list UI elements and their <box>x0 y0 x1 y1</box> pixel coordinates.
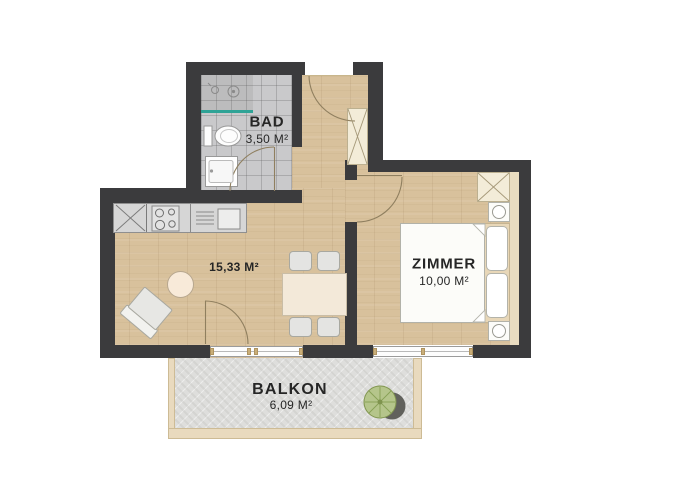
wall-hall-right <box>368 62 383 172</box>
bed-pillow <box>486 273 508 318</box>
wall-bath-left <box>186 62 201 203</box>
wall-right-exterior <box>519 160 531 358</box>
window-mullion <box>254 348 258 355</box>
room-area-zimmer: 10,00 M² <box>419 274 469 288</box>
shower-area <box>201 75 253 112</box>
room-area-balkon: 6,09 M² <box>270 398 313 412</box>
window-mullion <box>469 348 473 355</box>
bed-pillow <box>486 226 508 271</box>
wall-bottom-2 <box>303 345 373 358</box>
balcony-rail-left <box>168 358 175 439</box>
room-label-zimmer: ZIMMER <box>412 256 476 273</box>
dining-table <box>282 273 347 316</box>
window-mullion <box>299 348 303 355</box>
wall-zimmer-top <box>368 160 531 172</box>
window-mullion <box>421 348 425 355</box>
nightstand <box>488 202 510 222</box>
nightstand <box>488 321 510 341</box>
wall-bottom-1 <box>100 345 210 358</box>
room-area-bad: 3,50 M² <box>246 132 289 146</box>
dining-chair <box>289 317 312 337</box>
bed <box>400 223 485 323</box>
kitchen-counter <box>113 203 247 233</box>
balcony-door-window <box>210 346 303 357</box>
zimmer-window <box>373 346 473 357</box>
wall-living-top <box>100 188 201 203</box>
dining-chair <box>289 251 312 271</box>
wall-bath-bottom <box>186 190 302 203</box>
floor-plan: BAD 3,50 M² 15,33 M² ZIMMER 10,00 M² BAL… <box>0 0 700 500</box>
wall-ledge <box>510 172 519 345</box>
window-mullion <box>247 348 251 355</box>
window-mullion <box>373 348 377 355</box>
dining-chair <box>317 251 340 271</box>
hallway-wardrobe <box>347 108 368 165</box>
room-area-living: 15,33 M² <box>209 260 259 274</box>
side-table <box>167 271 194 298</box>
window-mullion <box>210 348 214 355</box>
dining-chair <box>317 317 340 337</box>
wall-bath-top <box>186 62 305 75</box>
wall-bottom-3 <box>473 345 531 358</box>
wall-bath-right <box>292 62 302 147</box>
room-label-bad: BAD <box>250 114 285 131</box>
vanity-sink <box>205 156 238 187</box>
balcony-rail-right <box>413 358 422 439</box>
balcony-rail-bottom <box>168 428 422 439</box>
zimmer-wardrobe <box>477 172 510 202</box>
shower-glass-divider <box>201 110 253 113</box>
room-label-balkon: BALKON <box>252 381 328 399</box>
